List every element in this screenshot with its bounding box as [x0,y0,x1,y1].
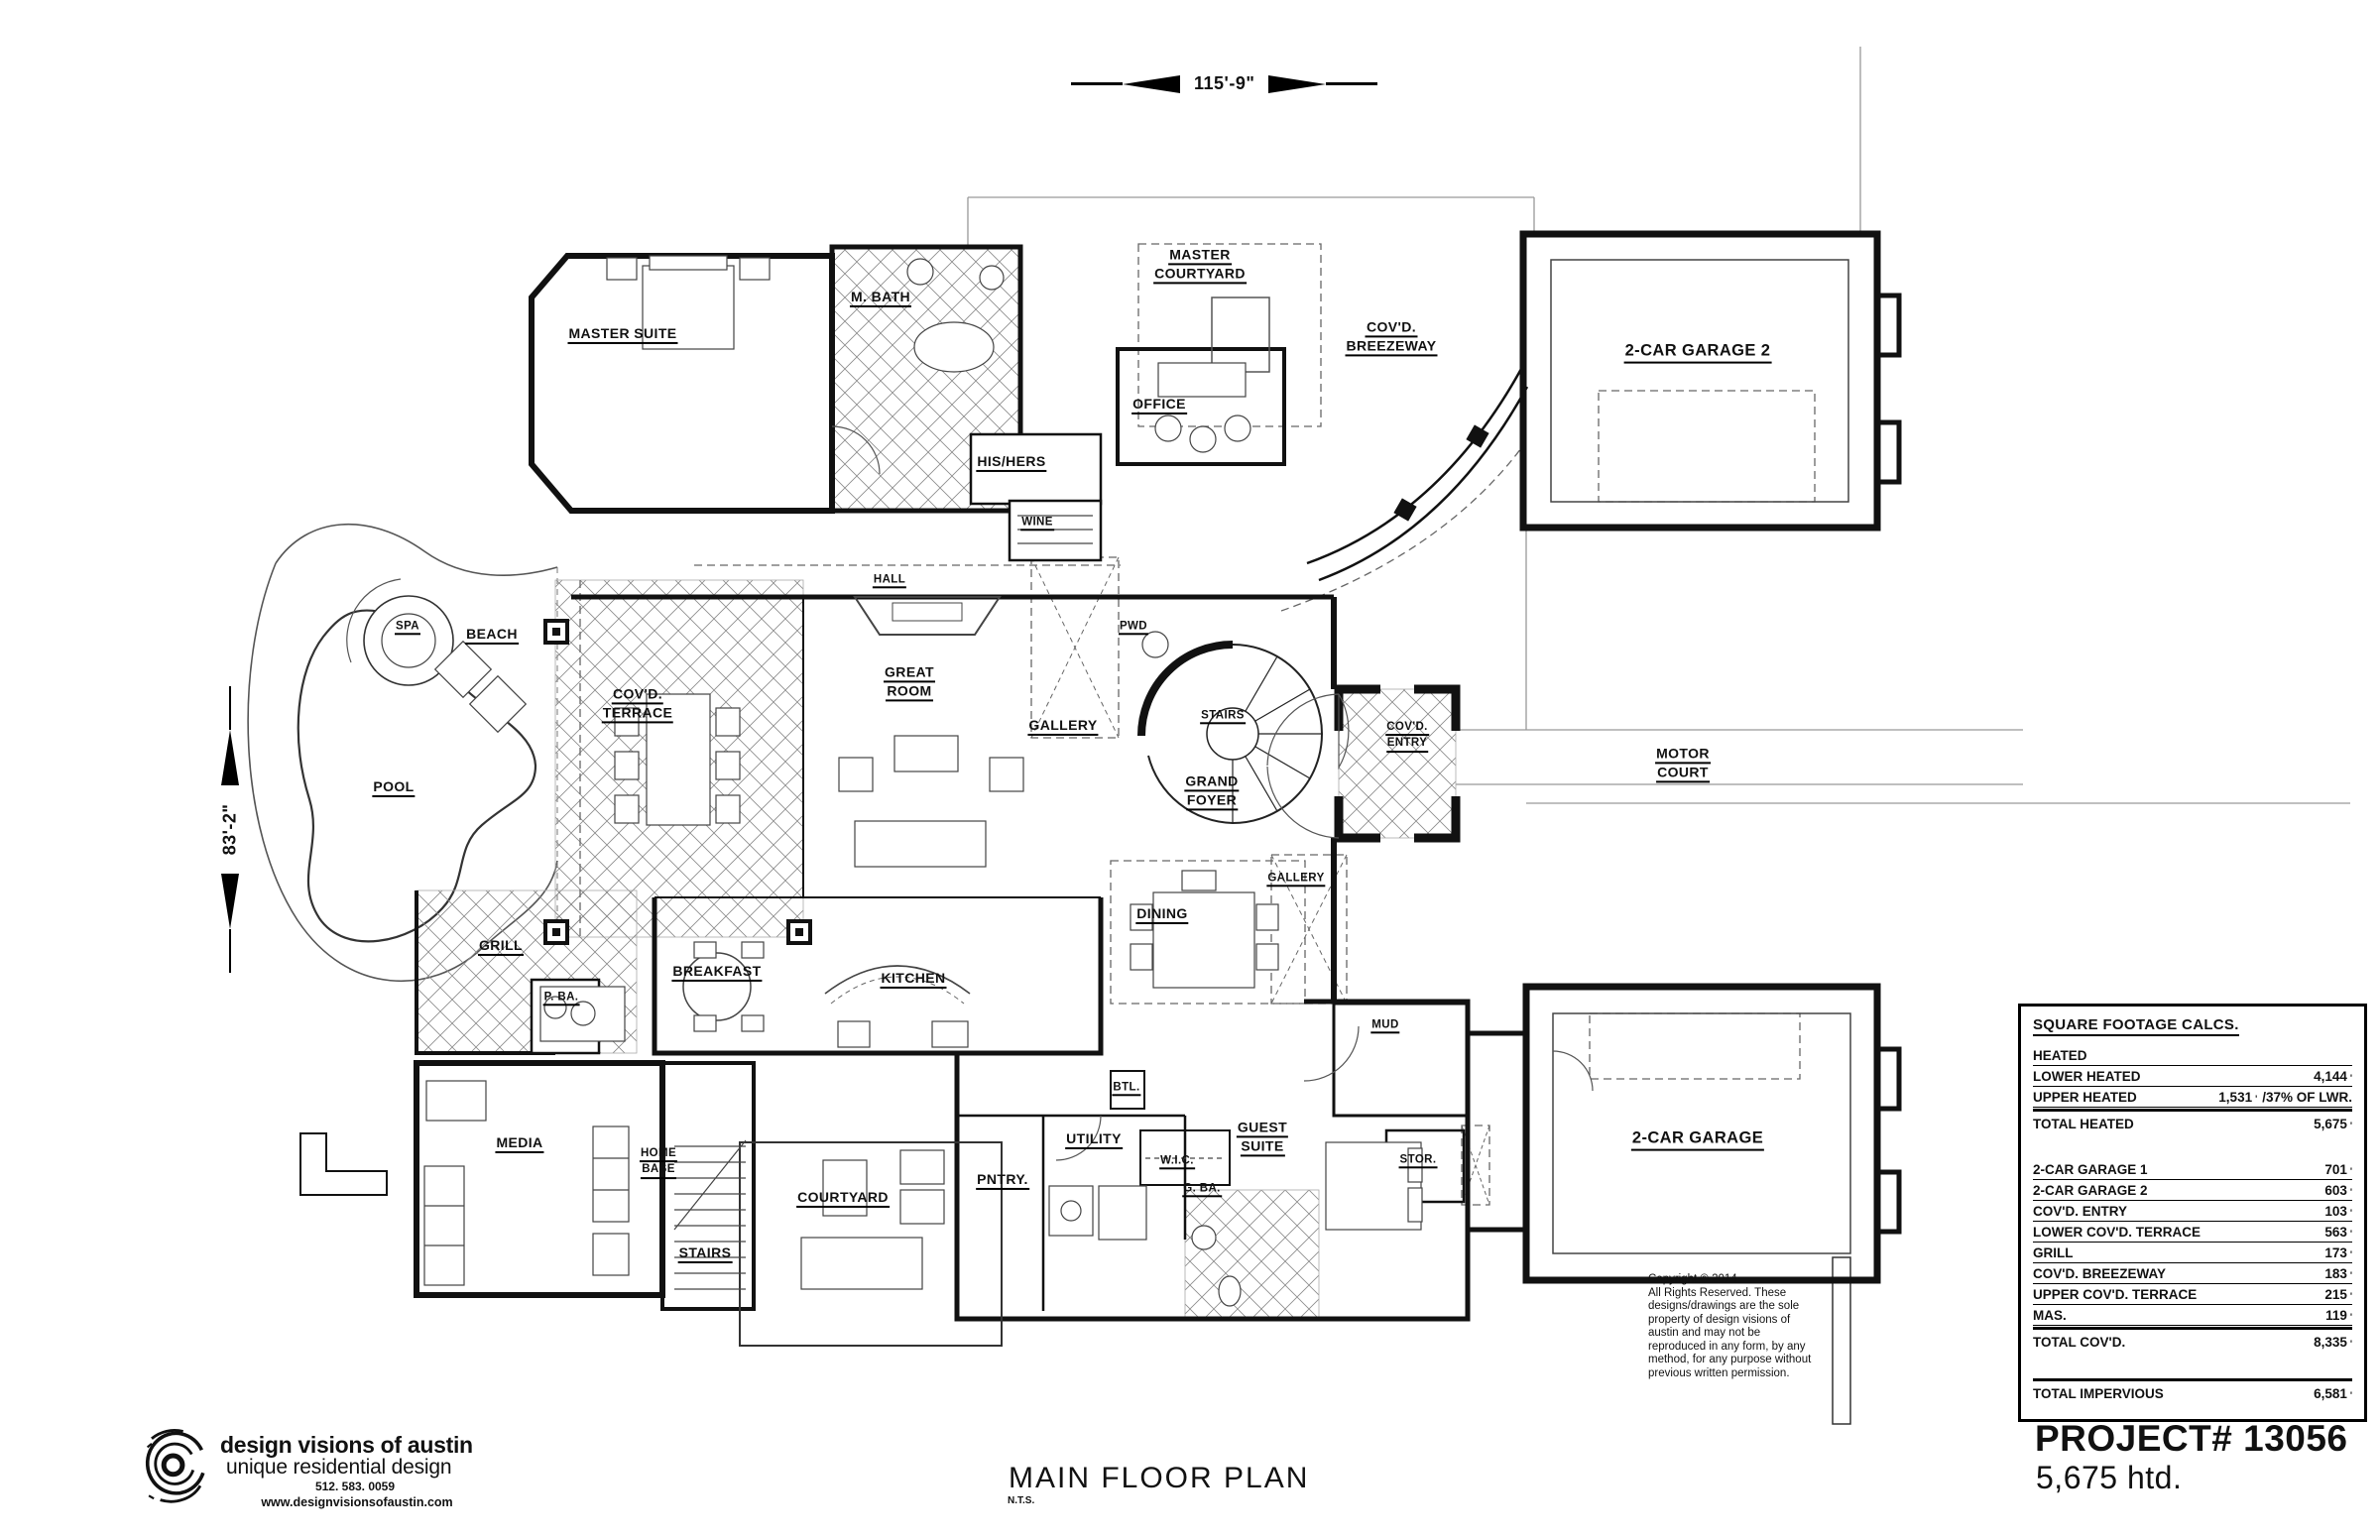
room-label-garage-2: 2-CAR GARAGE 2 [1624,342,1772,365]
swirl-logo-icon [139,1424,210,1513]
sqft-row-label: TOTAL HEATED [2033,1117,2134,1131]
label-line: P. BA. [543,991,580,1006]
media-sofa [593,1126,629,1222]
firm-name: design visions of austin [220,1432,473,1459]
room-label-grill: GRILL [478,937,524,957]
overall-height-dimension: 83'-2" [204,686,256,973]
label-line: GRAND [1184,773,1239,791]
sink [1192,1226,1216,1249]
label-line: 2-CAR GARAGE 2 [1624,343,1772,364]
range [932,1021,968,1047]
dryer [1099,1186,1146,1240]
project-number: PROJECT# 13056 [2035,1418,2348,1460]
dim-arrow-right-icon [1268,75,1326,93]
stair-treads [674,1146,746,1289]
label-line: TERRACE [602,706,673,724]
dim-arrow-up-icon [221,730,239,785]
sqft-unit: ' [2255,1094,2257,1104]
sqft-row: UPPER HEATED 1,531 ' /37% OF LWR. [2033,1087,2352,1108]
sqft-unit: ' [2350,1187,2352,1197]
sqft-unit: ' [2350,1291,2352,1301]
covd-entry-floor [1339,689,1456,838]
room-label-grand-foyer: GRANDFOYER [1184,772,1239,811]
room-label-garage-1: 2-CAR GARAGE [1631,1129,1764,1152]
label-line: ENTRY [1386,738,1429,753]
dim-line [1071,82,1123,84]
room-label-m-bath: M. BATH [850,289,911,308]
width-dimension-text: 115'-9" [1194,73,1254,94]
label-line: STAIRS [678,1245,733,1263]
firm-phone: 512. 583. 0059 [226,1480,484,1493]
sqft-row-value: 103 [2324,1204,2347,1219]
sqft-row-label: UPPER HEATED [2033,1090,2137,1105]
sqft-row-label: UPPER COV'D. TERRACE [2033,1287,2197,1302]
label-line: COV'D. [1366,319,1417,337]
label-line: COURT [1656,766,1710,783]
square-footage-table: SQUARE FOOTAGE CALCS. HEATED LOWER HEATE… [2018,1004,2367,1422]
sqft-row-value: 4,144 [2314,1069,2347,1084]
label-line: BREAKFAST [671,964,762,982]
scale-note: N.T.S. [1008,1495,1034,1506]
sqft-total-covered-row: TOTAL COV'D. 8,335 ' [2033,1327,2352,1352]
sqft-unit: ' [2350,1270,2352,1280]
room-label-g-ba: G. BA. [1182,1181,1222,1198]
label-line: FOYER [1186,793,1238,811]
sqft-unit: ' [2350,1229,2352,1239]
master-courtyard-planter [1212,297,1269,372]
sqft-row-label: TOTAL COV'D. [2033,1335,2125,1350]
sqft-section-heated: HEATED [2033,1048,2352,1066]
room-label-hall: HALL [873,572,906,589]
room-label-wic: W.I.C. [1159,1153,1195,1170]
sqft-row: COV'D. BREEZEWAY 183 ' [2033,1263,2352,1284]
label-line: BTL. [1112,1081,1140,1096]
room-label-p-ba: P. BA. [543,990,580,1007]
label-line: HOME [640,1147,677,1162]
room-label-dining: DINING [1135,905,1188,925]
sqft-row: GRILL 173 ' [2033,1243,2352,1263]
label-line: GUEST [1237,1120,1288,1137]
label-line: HIS/HERS [976,454,1046,472]
room-label-guest-suite: GUESTSUITE [1237,1119,1288,1157]
room-label-courtyard: COURTYARD [796,1189,890,1209]
label-line: GALLERY [1027,718,1098,736]
sqft-row-label: LOWER COV'D. TERRACE [2033,1225,2201,1240]
sqft-row-label: TOTAL IMPERVIOUS [2033,1386,2164,1401]
sqft-row: COV'D. ENTRY 103 ' [2033,1201,2352,1222]
breezeway-arc [1307,369,1521,563]
room-label-pwd: PWD [1119,619,1148,636]
toilet [1219,1276,1241,1306]
label-line: PWD [1119,620,1148,635]
sqft-row-value: 119 [2325,1308,2347,1323]
room-label-pntry: PNTRY. [976,1171,1029,1191]
sqft-row-value: 1,531 [2218,1090,2252,1105]
room-label-office: OFFICE [1131,396,1187,415]
sqft-unit: ' [2350,1249,2352,1259]
room-label-his-hers: HIS/HERS [976,453,1046,473]
room-label-covd-breezeway: COV'D.BREEZEWAY [1346,318,1438,357]
height-dimension-text: 83'-2" [219,804,240,856]
room-label-breakfast: BREAKFAST [671,963,762,983]
bathtub [914,322,994,372]
courtyard-sofa [801,1238,922,1289]
room-label-covd-terrace: COV'D.TERRACE [602,685,673,724]
label-line: MASTER [1168,247,1232,265]
room-label-master-suite: MASTER SUITE [567,325,677,345]
label-line: COV'D. [612,686,663,704]
sqft-unit: ' [2350,1208,2352,1218]
overall-width-dimension: 115'-9" [1071,73,1377,94]
label-line: MUD [1370,1018,1399,1033]
sqft-row: 2-CAR GARAGE 1 701 ' [2033,1159,2352,1180]
floor-plan-sheet: MASTER SUITE M. BATH HIS/HERS WINE OFFIC… [0,0,2380,1540]
room-label-motor-court: MOTORCOURT [1655,745,1711,783]
label-line: MOTOR [1655,746,1711,764]
sqft-row-value: 6,581 [2314,1386,2347,1401]
vanity-sink [907,259,933,285]
label-line: COV'D. [1385,721,1429,736]
room-label-pool: POOL [372,778,415,798]
label-line: GRILL [478,938,524,956]
label-line: SPA [395,620,420,635]
label-line: G. BA. [1182,1182,1222,1197]
label-line: COURTYARD [1153,267,1247,285]
label-line: W.I.C. [1159,1154,1195,1169]
sqft-row-value: 8,335 [2314,1335,2347,1350]
label-line: KITCHEN [880,971,946,989]
label-line: HALL [873,573,906,588]
sqft-row-value: 603 [2324,1183,2347,1198]
sqft-row: UPPER COV'D. TERRACE 215 ' [2033,1284,2352,1305]
firm-tagline: unique residential design [226,1456,451,1480]
dim-line [229,686,231,730]
sqft-row-label: 2-CAR GARAGE 2 [2033,1183,2148,1198]
label-line: UTILITY [1065,1131,1123,1149]
dim-arrow-left-icon [1123,75,1180,93]
room-label-media: MEDIA [495,1134,543,1154]
label-line: COURTYARD [796,1190,890,1208]
label-line: STOR. [1399,1153,1438,1168]
label-line: GREAT [884,664,935,682]
sqft-row: LOWER HEATED 4,144 ' [2033,1066,2352,1087]
room-label-spa: SPA [395,619,420,636]
sqft-row: MAS. 119 ' [2033,1305,2352,1326]
sqft-row-label: MAS. [2033,1308,2067,1323]
sqft-row-label: LOWER HEATED [2033,1069,2141,1084]
room-label-master-courtyard: MASTERCOURTYARD [1153,246,1247,285]
label-line: PNTRY. [976,1172,1029,1190]
sqft-unit: ' [2350,1073,2352,1083]
label-line: STAIRS [1200,709,1246,724]
room-label-btl: BTL. [1112,1080,1140,1097]
sqft-table-title: SQUARE FOOTAGE CALCS. [2033,1016,2239,1036]
label-line: ROOM [886,684,932,702]
sofa [855,821,986,867]
sqft-unit: ' [2350,1339,2352,1349]
room-label-stor: STOR. [1399,1152,1438,1169]
copyright-notice: Copyright © 2014 All Rights Reserved. Th… [1648,1273,1833,1381]
sqft-row-value: 173 [2324,1245,2347,1260]
label-line: BASE [641,1164,676,1179]
sqft-unit: ' [2350,1166,2352,1176]
dim-line [229,929,231,973]
sqft-row-label: GRILL [2033,1245,2074,1260]
dim-arrow-down-icon [221,874,239,929]
label-line: M. BATH [850,290,911,307]
office-desk [1158,363,1246,397]
garage-2-walls [1523,234,1877,528]
room-label-wine: WINE [1020,515,1054,532]
sqft-row-label: COV'D. BREEZEWAY [2033,1266,2166,1281]
walls [300,234,1899,1346]
drawing-title: MAIN FLOOR PLAN [1009,1462,1309,1495]
label-line: SUITE [1240,1139,1284,1157]
sqft-row-value: 701 [2324,1162,2347,1177]
label-line: POOL [372,779,415,797]
sqft-row-note: /37% OF LWR. [2262,1090,2352,1105]
dim-line [1326,82,1377,84]
label-line: DINING [1135,906,1188,924]
label-line: 2-CAR GARAGE [1631,1130,1764,1151]
label-line: BEACH [465,627,519,645]
label-line: OFFICE [1131,397,1187,415]
room-label-great-room: GREATROOM [884,663,935,702]
project-heated-area: 5,675 htd. [2036,1460,2182,1496]
sqft-row-value: 183 [2324,1266,2347,1281]
sqft-row-label: COV'D. ENTRY [2033,1204,2127,1219]
label-line: WINE [1020,516,1054,531]
sqft-row-value: 5,675 [2314,1117,2347,1131]
sqft-unit: ' [2350,1121,2352,1130]
vanity-sink [980,266,1004,290]
label-line: BREEZEWAY [1346,339,1438,357]
g-ba-floor [1185,1190,1319,1319]
sqft-unit: ' [2350,1390,2352,1400]
sqft-row-value: 215 [2324,1287,2347,1302]
room-label-gallery-2: GALLERY [1266,871,1325,888]
sqft-row: 2-CAR GARAGE 2 603 ' [2033,1180,2352,1201]
room-label-beach: BEACH [465,626,519,646]
room-label-kitchen: KITCHEN [880,970,946,990]
sqft-unit: ' [2350,1312,2352,1322]
site-bench [300,1133,387,1195]
sqft-row: LOWER COV'D. TERRACE 563 ' [2033,1222,2352,1243]
mud-walls [1334,1004,1468,1116]
label-line: MEDIA [495,1135,543,1153]
sqft-row-label: 2-CAR GARAGE 1 [2033,1162,2148,1177]
room-label-home-base: HOMEBASE [640,1146,677,1180]
room-label-stairs-lower: STAIRS [678,1244,733,1264]
table-spacer [2033,1352,2352,1377]
room-label-mud: MUD [1370,1017,1399,1034]
label-line: MASTER SUITE [567,326,677,344]
label-line: GALLERY [1266,872,1325,887]
room-label-utility: UTILITY [1065,1130,1123,1150]
table-spacer [2033,1133,2352,1159]
sqft-total-impervious-row: TOTAL IMPERVIOUS 6,581 ' [2033,1378,2352,1403]
room-label-stairs-main: STAIRS [1200,708,1246,725]
room-label-covd-entry: COV'D.ENTRY [1385,720,1429,754]
firm-website: www.designvisionsofaustin.com [208,1495,506,1509]
sqft-row-value: 563 [2324,1225,2347,1240]
sqft-total-heated-row: TOTAL HEATED 5,675 ' [2033,1109,2352,1133]
room-label-gallery-1: GALLERY [1027,717,1098,737]
